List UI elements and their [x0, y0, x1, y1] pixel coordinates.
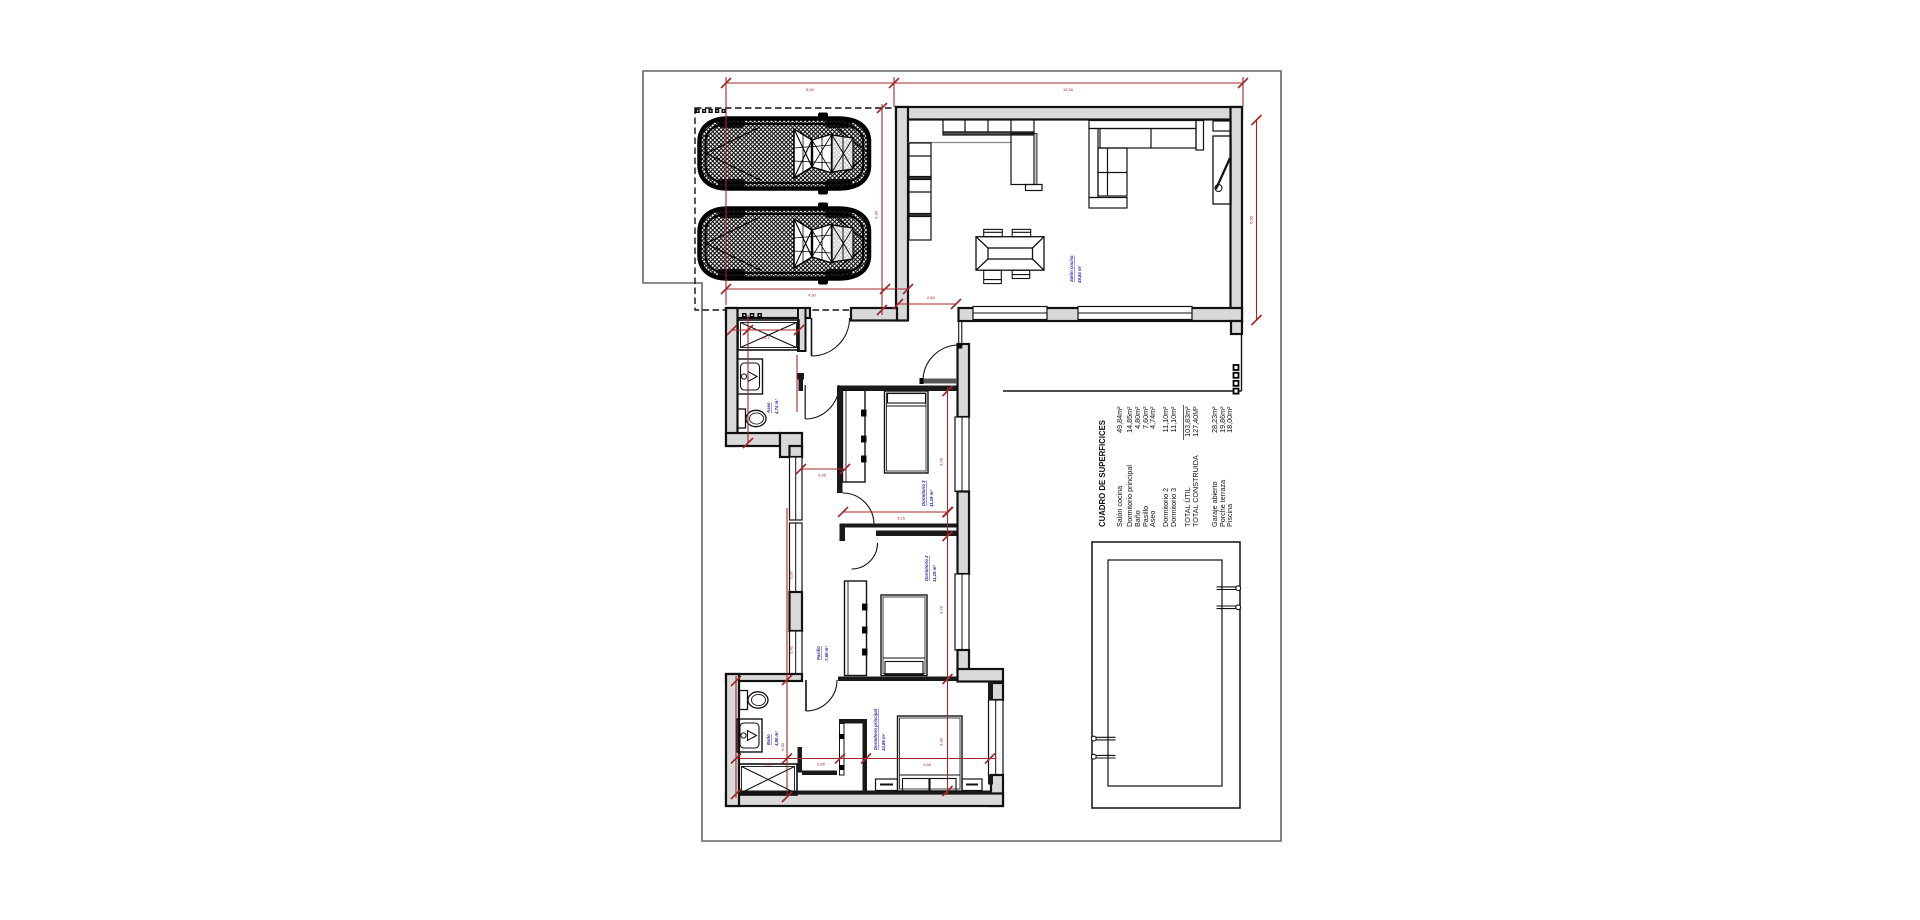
svg-text:Salón cocina: Salón cocina — [1115, 486, 1124, 527]
svg-text:5,30: 5,30 — [874, 210, 879, 219]
svg-text:4,74m²: 4,74m² — [1148, 406, 1157, 429]
svg-text:14,85 m²: 14,85 m² — [881, 733, 886, 751]
svg-text:49,84m²: 49,84m² — [1115, 406, 1124, 433]
svg-text:4,74 m²: 4,74 m² — [774, 399, 779, 415]
svg-text:Aseo: Aseo — [766, 402, 771, 414]
svg-text:0,95: 0,95 — [818, 473, 827, 478]
svg-text:3,30: 3,30 — [939, 737, 944, 746]
svg-text:11,19 m²: 11,19 m² — [932, 565, 937, 582]
svg-text:6,00: 6,00 — [1249, 215, 1254, 224]
svg-text:3,78: 3,78 — [939, 457, 944, 466]
svg-text:3,15: 3,15 — [897, 516, 906, 521]
svg-text:49,84 m²: 49,84 m² — [1077, 265, 1082, 284]
svg-text:0,85: 0,85 — [817, 762, 826, 767]
svg-text:0,87: 0,87 — [789, 570, 794, 579]
svg-text:CUADRO DE SUPERFICICES: CUADRO DE SUPERFICICES — [1098, 420, 1107, 527]
svg-text:1,42: 1,42 — [789, 645, 794, 654]
svg-text:Aseo: Aseo — [1148, 511, 1157, 527]
svg-text:0,61: 0,61 — [764, 762, 773, 767]
svg-text:Dormitorio 3: Dormitorio 3 — [921, 480, 926, 506]
svg-text:Salón cocina: Salón cocina — [1069, 255, 1074, 282]
svg-text:7,60 m²: 7,60 m² — [824, 646, 829, 661]
svg-text:8,90: 8,90 — [806, 87, 815, 92]
svg-text:11,10m²: 11,10m² — [1169, 406, 1178, 432]
svg-text:4,80 m²: 4,80 m² — [774, 731, 779, 747]
svg-text:Dormitorio 2: Dormitorio 2 — [924, 555, 929, 581]
svg-text:5,00: 5,00 — [780, 742, 785, 751]
svg-text:TOTAL CONSTRUIDA: TOTAL CONSTRUIDA — [1191, 455, 1200, 527]
svg-text:Piscina: Piscina — [1225, 504, 1234, 527]
svg-text:3,78: 3,78 — [939, 605, 944, 614]
svg-text:4,56: 4,56 — [923, 762, 932, 767]
svg-text:0,60: 0,60 — [927, 295, 936, 300]
svg-text:Baño: Baño — [766, 734, 771, 745]
svg-text:11,19 m²: 11,19 m² — [929, 490, 934, 507]
svg-text:Dormitorio 3: Dormitorio 3 — [1169, 488, 1178, 527]
svg-text:85.1: 85.1 — [762, 335, 771, 340]
svg-text:Dormitorio principal: Dormitorio principal — [873, 708, 878, 750]
svg-text:15,30: 15,30 — [1063, 87, 1074, 92]
svg-text:Pasillo: Pasillo — [816, 646, 821, 660]
svg-text:127,40M²: 127,40M² — [1191, 406, 1200, 437]
svg-text:4,90: 4,90 — [808, 293, 817, 298]
svg-text:18,00m²: 18,00m² — [1225, 406, 1234, 433]
